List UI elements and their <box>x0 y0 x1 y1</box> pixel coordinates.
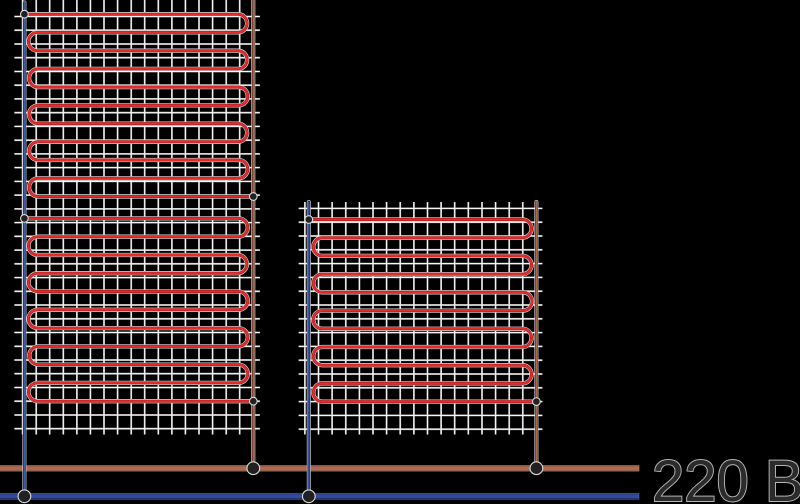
svg-text:220 В: 220 В <box>652 449 800 504</box>
